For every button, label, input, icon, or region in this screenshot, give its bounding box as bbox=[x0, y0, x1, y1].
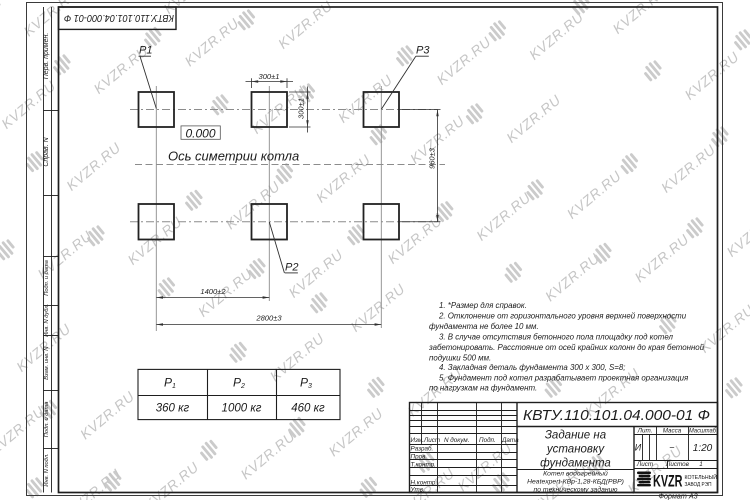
svg-text:300±1: 300±1 bbox=[297, 98, 306, 119]
svg-text:Масса: Масса bbox=[663, 427, 682, 434]
svg-text:забетонировать. Расстояние от: забетонировать. Расстояние от осей крайн… bbox=[428, 343, 705, 352]
svg-text:P3: P3 bbox=[416, 45, 430, 57]
svg-text:–: – bbox=[669, 443, 675, 452]
svg-text:Котел водогрейный: Котел водогрейный bbox=[543, 469, 608, 477]
svg-text:Heatexpert-КВр-1,28-КБД(РВР): Heatexpert-КВр-1,28-КБД(РВР) bbox=[527, 478, 624, 485]
svg-text:1400±2: 1400±2 bbox=[200, 287, 226, 296]
svg-text:Изм.Лист: Изм.Лист bbox=[411, 437, 441, 444]
svg-text:Лит.: Лит. bbox=[637, 427, 653, 434]
svg-text:Перв. примен.: Перв. примен. bbox=[43, 33, 50, 80]
svg-text:2800±3: 2800±3 bbox=[255, 314, 282, 323]
svg-text:Т.контр.: Т.контр. bbox=[411, 461, 436, 468]
svg-text:Инв. N подл.: Инв. N подл. bbox=[44, 453, 50, 486]
svg-text:Дата: Дата bbox=[501, 437, 519, 444]
svg-text:1. *Размер для справок.: 1. *Размер для справок. bbox=[439, 301, 527, 310]
svg-text:P3: P3 bbox=[300, 376, 312, 391]
svg-text:1:20: 1:20 bbox=[693, 443, 713, 454]
svg-text:P2: P2 bbox=[285, 262, 298, 274]
svg-text:360 кг: 360 кг bbox=[156, 403, 190, 415]
svg-text:КВТУ.110.101.04.000-01 Ф: КВТУ.110.101.04.000-01 Ф bbox=[523, 407, 710, 424]
svg-text:И: И bbox=[635, 443, 642, 453]
svg-text:Справ. N: Справ. N bbox=[43, 136, 50, 166]
svg-text:Взам. инв. N: Взам. инв. N bbox=[44, 346, 50, 380]
svg-text:Подп. и дата: Подп. и дата bbox=[44, 260, 50, 296]
svg-text:0.000: 0.000 bbox=[185, 126, 215, 140]
svg-text:Лист: Лист bbox=[636, 461, 653, 468]
svg-text:по нагрузкам на фундамент.: по нагрузкам на фундамент. bbox=[429, 384, 537, 393]
svg-text:Н.контр.: Н.контр. bbox=[411, 479, 438, 486]
svg-text:Пров.: Пров. bbox=[411, 453, 428, 460]
svg-text:1000 кг: 1000 кг bbox=[222, 403, 262, 415]
svg-text:300±1: 300±1 bbox=[258, 72, 279, 81]
svg-text:Формат А3: Формат А3 bbox=[658, 492, 697, 500]
svg-text:P1: P1 bbox=[139, 45, 152, 57]
svg-text:Листов: Листов bbox=[665, 461, 690, 468]
svg-text:Подп.: Подп. bbox=[479, 436, 496, 444]
svg-text:960±3: 960±3 bbox=[427, 147, 436, 169]
svg-text:Подп. и дата: Подп. и дата bbox=[44, 402, 50, 438]
svg-text:3. В случае отсутствия бетонно: 3. В случае отсутствия бетонного пола пл… bbox=[439, 333, 673, 342]
svg-text:460 кг: 460 кг bbox=[291, 403, 325, 415]
svg-text:Утв.: Утв. bbox=[410, 486, 425, 493]
svg-text:P1: P1 bbox=[164, 376, 176, 391]
svg-text:2. Отклонение от горизонтально: 2. Отклонение от горизонтального уровня … bbox=[438, 312, 687, 321]
svg-text:KVZR: KVZR bbox=[653, 473, 683, 491]
svg-text:Масштаб: Масштаб bbox=[689, 426, 716, 434]
svg-text:Задание на: Задание на bbox=[545, 430, 606, 442]
svg-text:4. Закладная деталь фундамента: 4. Закладная деталь фундамента 300 x 300… bbox=[439, 363, 625, 372]
svg-text:фундамента: фундамента bbox=[540, 458, 611, 470]
svg-text:ЗАВОД РЭП: ЗАВОД РЭП bbox=[685, 482, 712, 488]
svg-text:5. Фундамент под котел разраба: 5. Фундамент под котел разрабатывает про… bbox=[439, 373, 689, 382]
svg-text:подушки 500 мм.: подушки 500 мм. bbox=[429, 353, 491, 362]
svg-text:1: 1 bbox=[699, 461, 703, 468]
svg-text:Ось симетрии котла: Ось симетрии котла bbox=[168, 149, 299, 164]
svg-text:КОТЕЛЬНЫЙ: КОТЕЛЬНЫЙ bbox=[685, 473, 718, 481]
svg-text:Инв. N дубл.: Инв. N дубл. bbox=[44, 304, 50, 337]
svg-text:N докум.: N докум. bbox=[444, 436, 469, 444]
svg-text:установку: установку bbox=[546, 444, 606, 456]
svg-text:по техническому заданию: по техническому заданию bbox=[534, 485, 618, 493]
svg-text:КВТУ.110.101.04.000-01 Ф: КВТУ.110.101.04.000-01 Ф bbox=[64, 12, 174, 23]
svg-text:фундамента не более 10 мм.: фундамента не более 10 мм. bbox=[429, 322, 539, 331]
svg-text:Разраб.: Разраб. bbox=[411, 445, 434, 453]
svg-text:P2: P2 bbox=[233, 376, 245, 391]
